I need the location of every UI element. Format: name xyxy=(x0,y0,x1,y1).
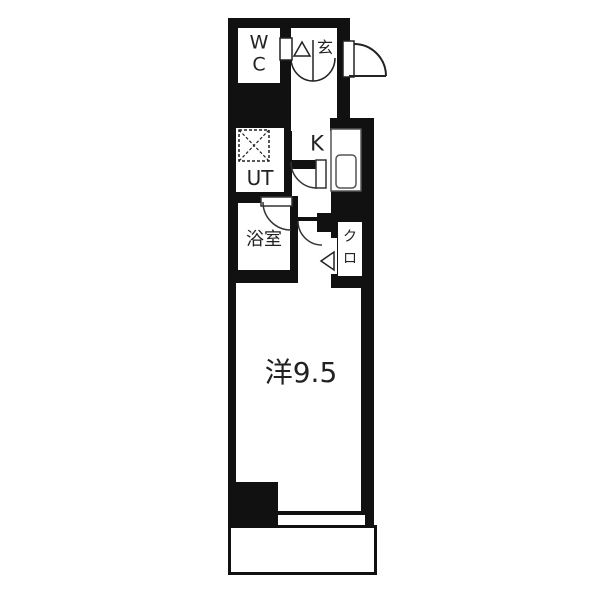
vestibule-wall-line xyxy=(298,217,322,221)
balcony: バルコニー xyxy=(228,525,377,575)
bathroom-label: 浴室 xyxy=(246,231,282,249)
hall-neck xyxy=(291,118,330,131)
entrance-label: 玄 xyxy=(317,40,333,56)
entry-door-swing-arc xyxy=(354,44,386,76)
utility-label: UT xyxy=(247,168,274,188)
window-sill-line xyxy=(278,511,365,515)
wc-label-line2: C xyxy=(252,56,265,75)
main-room xyxy=(236,283,361,511)
door-stub-wall xyxy=(317,213,332,232)
closet-door-strip xyxy=(325,238,337,274)
corner-pillar xyxy=(228,482,278,525)
wc-label-line1: W xyxy=(250,34,269,53)
kitchen-door-stub xyxy=(284,160,317,169)
balcony-window xyxy=(278,515,365,525)
kitchen-label: K xyxy=(310,134,324,155)
floor-plan-canvas: バルコニー W C 玄 K UT 浴室 ク ロ 洋9.5 xyxy=(0,0,600,600)
main-room-label: 洋9.5 xyxy=(265,359,338,387)
closet-label-line2: ロ xyxy=(343,252,357,266)
closet-label-line1: ク xyxy=(343,230,357,244)
